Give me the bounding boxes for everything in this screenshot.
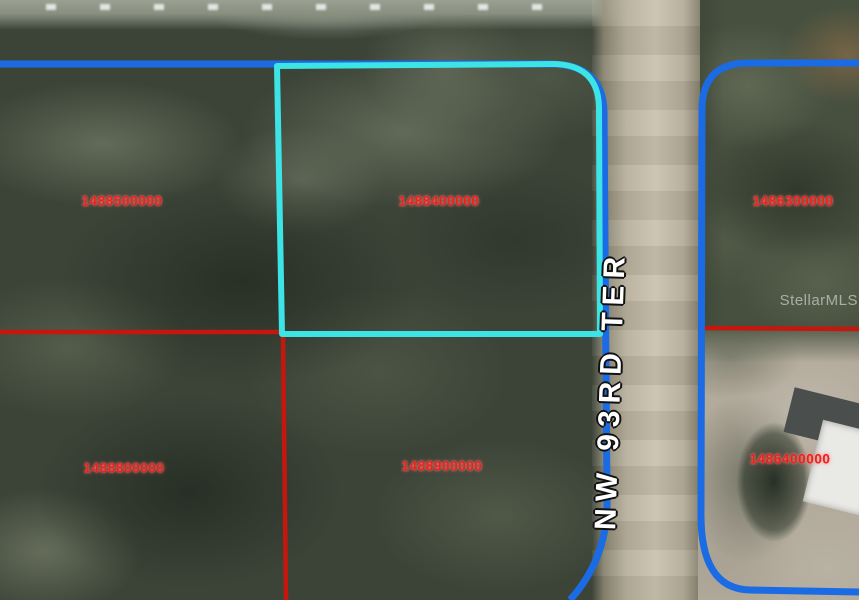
aerial-parcel-map: 1488500000 1488400000 1486300000 1488800… [0, 0, 859, 600]
parcel-number-label: 1488900000 [401, 459, 482, 474]
parcel-number-label: 1488500000 [81, 194, 162, 209]
parcel-number-label-highlighted: 1488400000 [398, 194, 479, 209]
parcel-boundaries-overlay [0, 0, 859, 600]
red-parcel-divider-vertical [283, 334, 286, 600]
parcel-number-label: 1486300000 [752, 194, 833, 209]
stellarmls-watermark: StellarMLS [780, 292, 858, 309]
parcel-number-label: 1486400000 [749, 452, 830, 467]
parcel-number-label: 1488800000 [83, 461, 164, 476]
red-parcel-line-east [705, 328, 859, 329]
